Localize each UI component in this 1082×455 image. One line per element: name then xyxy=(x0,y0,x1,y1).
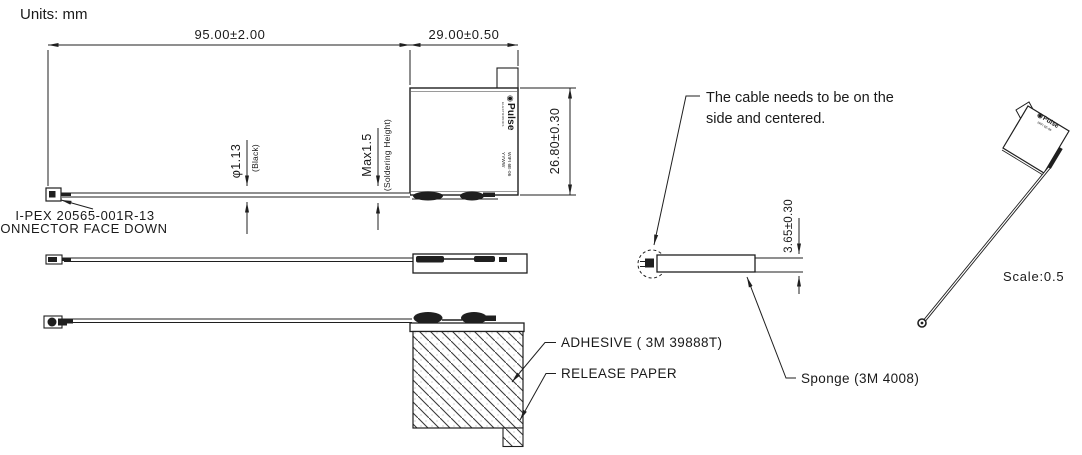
part-marking-line1: WIFI 6E-06 xyxy=(506,152,512,177)
thickness-dim-label: 3.65±0.30 xyxy=(783,199,795,253)
adhesive-block xyxy=(413,332,523,429)
cable-end xyxy=(645,259,654,268)
release-paper-label: RELEASE PAPER xyxy=(561,366,677,381)
solder-pad-side-right xyxy=(474,256,495,262)
solder-height-note: (Soldering Height) xyxy=(382,119,392,191)
pulse-logo-name: Pulse xyxy=(505,103,516,131)
sponge-leader xyxy=(747,277,796,378)
cable-note-line2: side and centered. xyxy=(706,111,825,127)
solder-dome-left xyxy=(414,312,443,324)
connector-bottom-barrel xyxy=(48,318,57,327)
connector-side-body xyxy=(48,257,57,262)
cable-diameter-label: φ1.13 xyxy=(229,144,243,178)
solder-tail xyxy=(483,193,495,198)
adhesive-label: ADHESIVE ( 3M 39888T) xyxy=(561,335,722,350)
sponge-bar xyxy=(657,255,755,272)
cable-crimp xyxy=(61,193,71,197)
connector-bottom-body xyxy=(58,319,67,326)
cable-diameter-note: (Black) xyxy=(250,144,260,172)
solder-dome-tail xyxy=(485,316,496,322)
side-view-middle xyxy=(46,254,527,273)
sponge-label: Sponge (3M 4008) xyxy=(801,371,919,386)
release-paper-leader xyxy=(520,374,556,421)
drawing-svg: Units: mm 95.00±2.00 29.00±0.50 ◉Pulse E… xyxy=(0,0,1082,455)
part-marking-line2: YYWW xyxy=(500,152,506,168)
dim-overall-label: 95.00±2.00 xyxy=(195,27,266,42)
solder-pad-left xyxy=(413,192,443,201)
cable-note-leader xyxy=(654,96,700,245)
solder-pad-side-left xyxy=(416,256,444,263)
side-view-bottom: ADHESIVE ( 3M 39888T) RELEASE PAPER xyxy=(44,312,722,447)
iso-view: ◉Pulse WIFI 6E-06 Scale:0.5 xyxy=(918,102,1069,327)
pulse-logo-mark-icon: ◉ xyxy=(506,95,515,102)
solder-height-label: Max1.5 xyxy=(360,133,374,176)
scale-label: Scale:0.5 xyxy=(1003,269,1064,284)
solder-tip-side xyxy=(499,257,507,262)
solder-dome-right xyxy=(461,312,487,324)
iso-connector-pin xyxy=(921,322,924,325)
ipex-connector-pin xyxy=(49,191,56,198)
top-view: 95.00±2.00 29.00±0.50 ◉Pulse ELECTRONICS… xyxy=(0,27,576,236)
connector-note-line2: CONNECTOR FACE DOWN xyxy=(0,221,168,236)
cable-note-line1: The cable needs to be on the xyxy=(706,90,894,106)
svg-text:◉Pulse: ◉Pulse xyxy=(505,95,516,131)
iso-cable-inner xyxy=(925,168,1049,320)
cable-fill xyxy=(62,193,410,197)
release-paper-tab xyxy=(503,428,523,447)
antenna-film-bar xyxy=(410,323,524,332)
antenna-tab xyxy=(497,68,518,90)
dim-body-height-label: 26.80±0.30 xyxy=(548,108,562,174)
pulse-logo-subtext: ELECTRONICS xyxy=(501,102,505,127)
technical-drawing-canvas: Units: mm 95.00±2.00 29.00±0.50 ◉Pulse E… xyxy=(0,0,1082,455)
dim-body-width-label: 29.00±0.50 xyxy=(429,27,500,42)
solder-pad-right xyxy=(460,192,484,201)
units-label: Units: mm xyxy=(20,6,88,23)
